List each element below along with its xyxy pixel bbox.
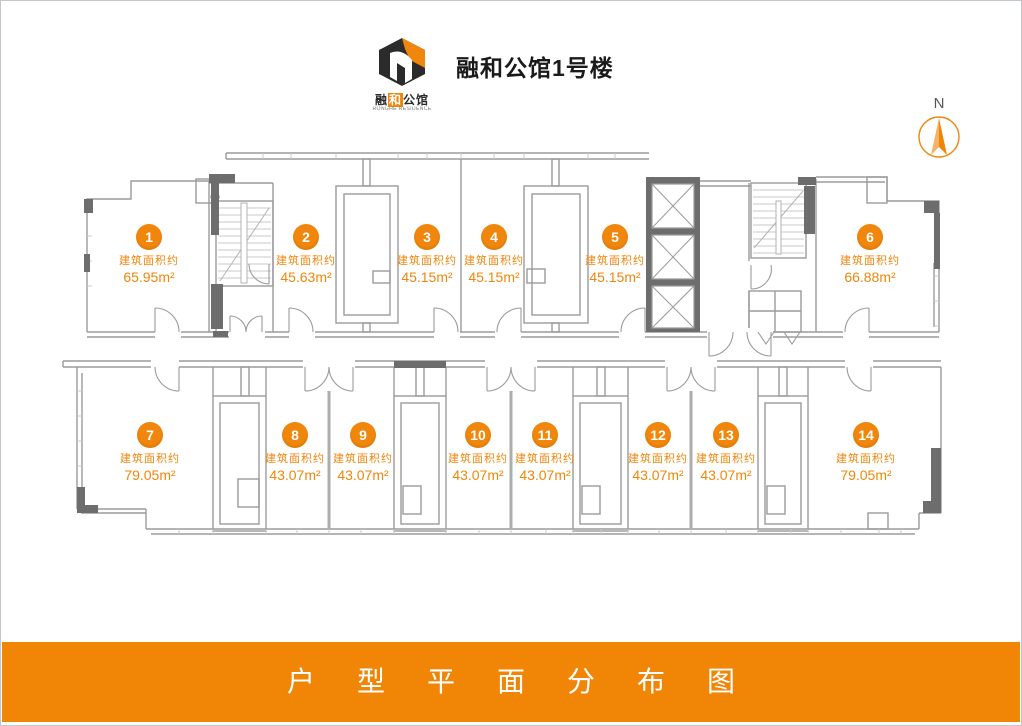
unit-number-badge: 5 xyxy=(602,224,628,250)
footer-title: 户型平面分布图 xyxy=(245,642,777,722)
unit-area-label: 建筑面积约 xyxy=(560,255,670,268)
door-openings xyxy=(151,328,873,368)
unit-area-value: 79.05m² xyxy=(95,468,205,483)
unit-label-11: 11 建筑面积约 43.07m² xyxy=(490,422,600,483)
unit-label-13: 13 建筑面积约 43.07m² xyxy=(671,422,781,483)
unit-label-4: 4 建筑面积约 45.15m² xyxy=(439,224,549,285)
unit-area-label: 建筑面积约 xyxy=(490,453,600,466)
unit-number-badge: 14 xyxy=(853,422,879,448)
unit-number-badge: 10 xyxy=(465,422,491,448)
footer-banner: 户型平面分布图 xyxy=(2,642,1020,722)
unit-number-badge: 4 xyxy=(481,224,507,250)
unit-label-6: 6 建筑面积约 66.88m² xyxy=(815,224,925,285)
unit-label-5: 5 建筑面积约 45.15m² xyxy=(560,224,670,285)
unit-area-label: 建筑面积约 xyxy=(95,453,205,466)
unit-area-label: 建筑面积约 xyxy=(815,255,925,268)
unit-area-value: 66.88m² xyxy=(815,270,925,285)
unit-number-badge: 11 xyxy=(532,422,558,448)
unit-area-value: 43.07m² xyxy=(308,468,418,483)
unit-area-label: 建筑面积约 xyxy=(439,255,549,268)
unit-area-label: 建筑面积约 xyxy=(671,453,781,466)
unit-area-label: 建筑面积约 xyxy=(308,453,418,466)
unit-number-badge: 6 xyxy=(857,224,883,250)
unit-number-badge: 3 xyxy=(414,224,440,250)
floor-plan-drawing xyxy=(1,1,1022,726)
unit-number-badge: 8 xyxy=(282,422,308,448)
unit-area-value: 45.15m² xyxy=(439,270,549,285)
poster-page: 融和公馆 RONGHE RESIDENCE 融和公馆1号楼 N xyxy=(0,0,1022,726)
unit-label-9: 9 建筑面积约 43.07m² xyxy=(308,422,418,483)
unit-area-label: 建筑面积约 xyxy=(251,255,361,268)
unit-number-badge: 12 xyxy=(645,422,671,448)
unit-number-badge: 7 xyxy=(137,422,163,448)
unit-number-badge: 13 xyxy=(713,422,739,448)
unit-area-value: 45.63m² xyxy=(251,270,361,285)
unit-area-label: 建筑面积约 xyxy=(811,453,921,466)
unit-area-value: 45.15m² xyxy=(560,270,670,285)
unit-area-value: 43.07m² xyxy=(490,468,600,483)
unit-label-14: 14 建筑面积约 79.05m² xyxy=(811,422,921,483)
unit-area-value: 65.95m² xyxy=(94,270,204,285)
unit-area-value: 79.05m² xyxy=(811,468,921,483)
unit-area-label: 建筑面积约 xyxy=(94,255,204,268)
unit-label-7: 7 建筑面积约 79.05m² xyxy=(95,422,205,483)
unit-label-2: 2 建筑面积约 45.63m² xyxy=(251,224,361,285)
unit-area-value: 43.07m² xyxy=(671,468,781,483)
unit-number-badge: 2 xyxy=(293,224,319,250)
unit-label-1: 1 建筑面积约 65.95m² xyxy=(94,224,204,285)
unit-number-badge: 1 xyxy=(136,224,162,250)
unit-number-badge: 9 xyxy=(350,422,376,448)
